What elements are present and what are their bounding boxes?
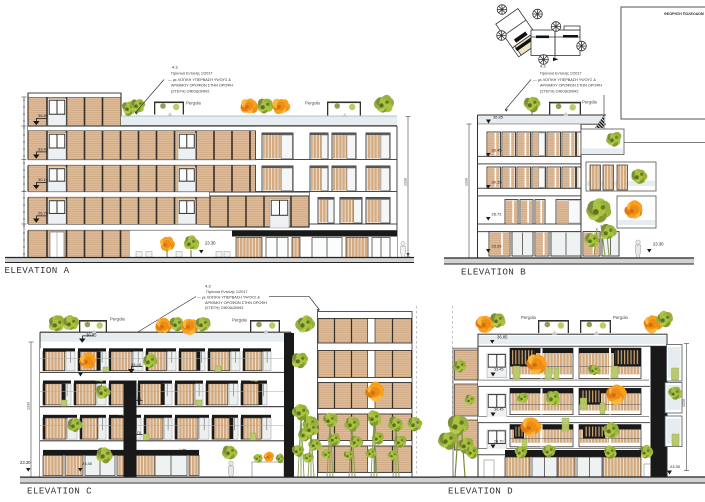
- svg-text:ELEVATION D: ELEVATION D: [448, 485, 513, 496]
- svg-text:36.85: 36.85: [38, 113, 49, 118]
- svg-text:Πρόνοια Εντολής 1/2017: Πρόνοια Εντολής 1/2017: [540, 72, 582, 76]
- svg-text:ΑΡΙΘΜΟΥ ΟΡΟΦΩΝ ΣΤΗΝ ΟΡΟΦΗ: ΑΡΙΘΜΟΥ ΟΡΟΦΩΝ ΣΤΗΝ ΟΡΟΦΗ: [540, 84, 602, 88]
- svg-text:Pergola: Pergola: [232, 318, 247, 323]
- svg-text:4.3: 4.3: [172, 64, 178, 69]
- svg-text:— με ΛΟΓΙΚΗ ΥΠΕΡΒΑΣΗ ΥΨΟΥΣ &: — με ΛΟΓΙΚΗ ΥΠΕΡΒΑΣΗ ΥΨΟΥΣ &: [197, 295, 260, 299]
- svg-text:30.15: 30.15: [492, 180, 503, 185]
- svg-text:33.45: 33.45: [494, 368, 504, 372]
- svg-text:— με ΛΟΓΙΚΗ ΥΠΕΡΒΑΣΗ ΥΨΟΥΣ &: — με ΛΟΓΙΚΗ ΥΠΕΡΒΑΣΗ ΥΨΟΥΣ &: [533, 78, 596, 82]
- svg-text:Πρόνοια Εντολής 1/2017: Πρόνοια Εντολής 1/2017: [206, 290, 248, 294]
- svg-text:26.70: 26.70: [131, 430, 142, 435]
- svg-text:33.45: 33.45: [38, 147, 49, 152]
- svg-text:Pergola: Pergola: [186, 101, 201, 106]
- svg-text:30.15: 30.15: [38, 177, 49, 182]
- svg-text:26.70: 26.70: [494, 440, 504, 444]
- svg-text:26.72: 26.72: [492, 212, 503, 217]
- svg-text:4.3: 4.3: [540, 64, 546, 69]
- svg-text:1330: 1330: [27, 402, 31, 410]
- svg-text:30.15: 30.15: [131, 396, 142, 401]
- svg-text:36.85: 36.85: [493, 115, 504, 120]
- svg-text:36.85: 36.85: [497, 335, 508, 340]
- svg-text:ELEVATION C: ELEVATION C: [27, 485, 92, 496]
- svg-text:23.30: 23.30: [653, 242, 664, 247]
- svg-text:26.70: 26.70: [38, 211, 49, 216]
- svg-text:Pergola: Pergola: [613, 315, 628, 320]
- svg-text:ΘΕΩΡΗΣΗ ΠΟΛΕΟΔΟΜ: ΘΕΩΡΗΣΗ ΠΟΛΕΟΔΟΜ: [664, 12, 704, 16]
- svg-text:— με ΛΟΓΙΚΗ ΥΠΕΡΒΑΣΗ ΥΨΟΥΣ &: — με ΛΟΓΙΚΗ ΥΠΕΡΒΑΣΗ ΥΨΟΥΣ &: [168, 78, 231, 82]
- svg-text:23.30: 23.30: [205, 241, 216, 246]
- svg-text:Pergola: Pergola: [582, 100, 597, 105]
- svg-text:1330: 1330: [404, 178, 408, 186]
- svg-text:30.45: 30.45: [494, 408, 504, 412]
- svg-text:(ΣΤΕΓΗ) ΟΙΚΟΔΟΜΗΣ: (ΣΤΕΓΗ) ΟΙΚΟΔΟΜΗΣ: [540, 89, 579, 93]
- svg-text:Πρόνοια Εντολής 1/2017: Πρόνοια Εντολής 1/2017: [171, 72, 213, 76]
- svg-text:33.45: 33.45: [131, 362, 142, 367]
- svg-text:23.30: 23.30: [82, 461, 93, 466]
- svg-text:(ΣΤΕΓΗ) ΟΙΚΟΔΟΜΗΣ: (ΣΤΕΓΗ) ΟΙΚΟΔΟΜΗΣ: [171, 89, 210, 93]
- svg-text:1330: 1330: [682, 399, 686, 407]
- svg-text:ELEVATION A: ELEVATION A: [5, 265, 70, 276]
- svg-text:ΑΡΙΘΜΟΥ ΟΡΟΦΩΝ ΣΤΗΝ ΟΡΟΦΗ: ΑΡΙΘΜΟΥ ΟΡΟΦΩΝ ΣΤΗΝ ΟΡΟΦΗ: [205, 301, 267, 305]
- svg-text:Pergola: Pergola: [110, 317, 125, 322]
- svg-text:ELEVATION B: ELEVATION B: [461, 267, 526, 278]
- svg-text:ΑΡΙΘΜΟΥ ΟΡΟΦΩΝ ΣΤΗΝ ΟΡΟΦΗ: ΑΡΙΘΜΟΥ ΟΡΟΦΩΝ ΣΤΗΝ ΟΡΟΦΗ: [171, 84, 233, 88]
- svg-text:Pergola: Pergola: [305, 101, 320, 106]
- svg-text:1330: 1330: [465, 178, 469, 186]
- svg-text:23.30: 23.30: [670, 464, 681, 469]
- svg-text:(ΣΤΕΓΗ) ΟΙΚΟΔΟΜΗΣ: (ΣΤΕΓΗ) ΟΙΚΟΔΟΜΗΣ: [205, 306, 244, 310]
- svg-text:23.35: 23.35: [492, 244, 503, 249]
- svg-text:Pergola: Pergola: [521, 315, 536, 320]
- svg-text:4.3: 4.3: [205, 284, 211, 289]
- svg-text:33.45: 33.45: [492, 148, 503, 153]
- svg-text:23.30: 23.30: [20, 460, 31, 465]
